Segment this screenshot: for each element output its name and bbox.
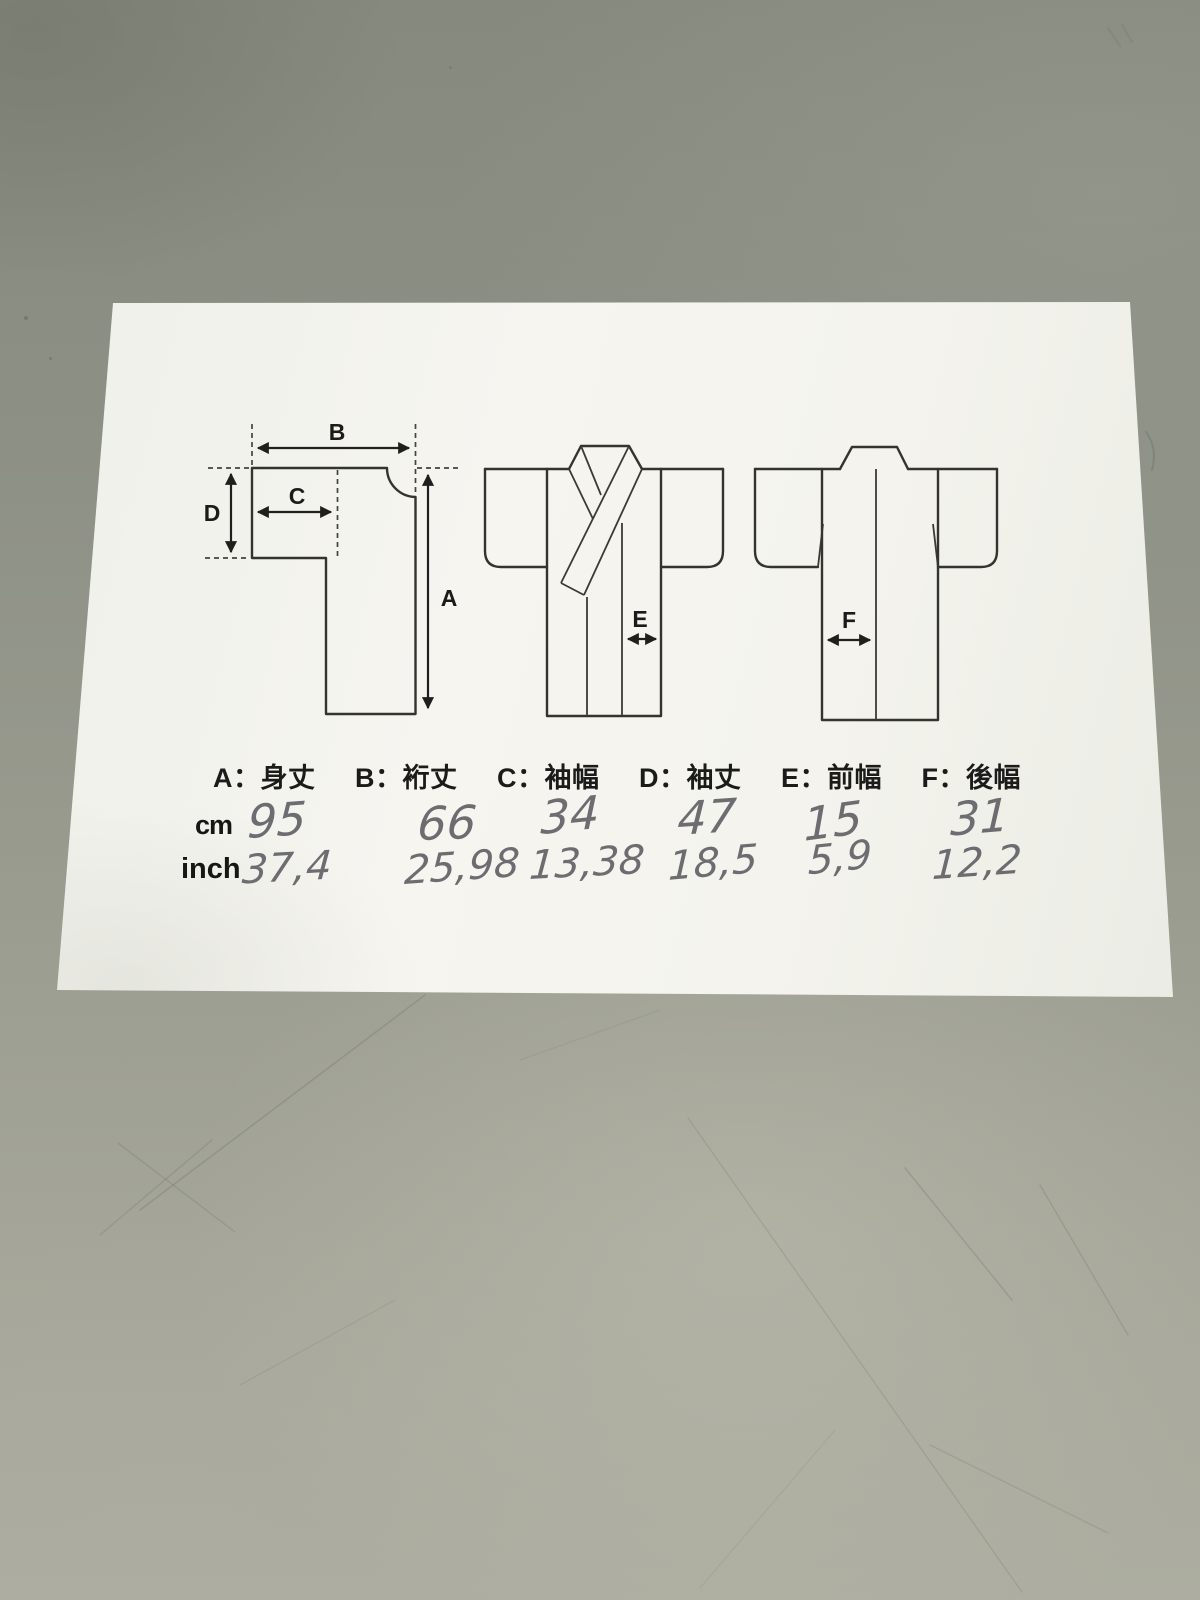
measure-label-b: B: [329, 419, 346, 445]
table-speck: [49, 357, 52, 360]
measurement-legend: A：身丈 B：裄丈 C：袖幅 D：袖丈 E：前幅 F：後幅: [213, 763, 1021, 794]
unit-label-inch: inch: [181, 853, 241, 886]
legend-item-a: A：身丈: [213, 763, 316, 794]
kimono-back-view-diagram: F: [745, 435, 1010, 735]
inch-value-e: 5,9: [808, 835, 873, 881]
body-outline: [547, 469, 661, 716]
measure-label-e: E: [632, 606, 647, 632]
inch-value-c: 13,38: [528, 840, 646, 886]
unit-label-cm: cm: [195, 810, 232, 841]
cm-value-a: 95: [246, 795, 307, 845]
cm-value-f: 31: [950, 792, 1011, 843]
cm-value-b: 66: [416, 799, 479, 847]
left-sleeve: [755, 469, 818, 567]
legend-item-b: B：裄丈: [355, 763, 458, 794]
back-collar: [569, 446, 642, 469]
measure-label-a: A: [441, 585, 458, 611]
collar-band-under: [569, 446, 601, 519]
size-chart-paper: B C D A E: [57, 302, 1173, 997]
measure-label-d: D: [204, 500, 221, 526]
measure-label-f: F: [842, 607, 856, 633]
kimono-flat-measurement-diagram: B C D A: [195, 410, 465, 725]
left-sleeve: [485, 469, 547, 567]
inch-value-f: 12,2: [931, 840, 1023, 886]
body-outline: [822, 469, 938, 720]
garment-outline: [252, 468, 416, 714]
inch-value-a: 37,4: [241, 846, 333, 891]
kimono-front-view-diagram: E: [475, 435, 735, 725]
cm-value-c: 34: [540, 789, 600, 841]
measure-label-c: C: [289, 483, 306, 509]
cm-value-d: 47: [676, 792, 737, 842]
inch-value-b: 25,98: [403, 843, 520, 891]
inch-value-d: 18,5: [667, 839, 758, 887]
photo-of-size-chart: B C D A E: [0, 0, 1200, 1600]
table-speck: [449, 66, 452, 69]
legend-item-e: E：前幅: [781, 763, 882, 794]
collar-band: [561, 446, 642, 595]
back-collar: [840, 447, 908, 469]
right-sleeve: [661, 469, 723, 567]
table-speck: [24, 316, 28, 320]
right-sleeve: [938, 469, 997, 567]
